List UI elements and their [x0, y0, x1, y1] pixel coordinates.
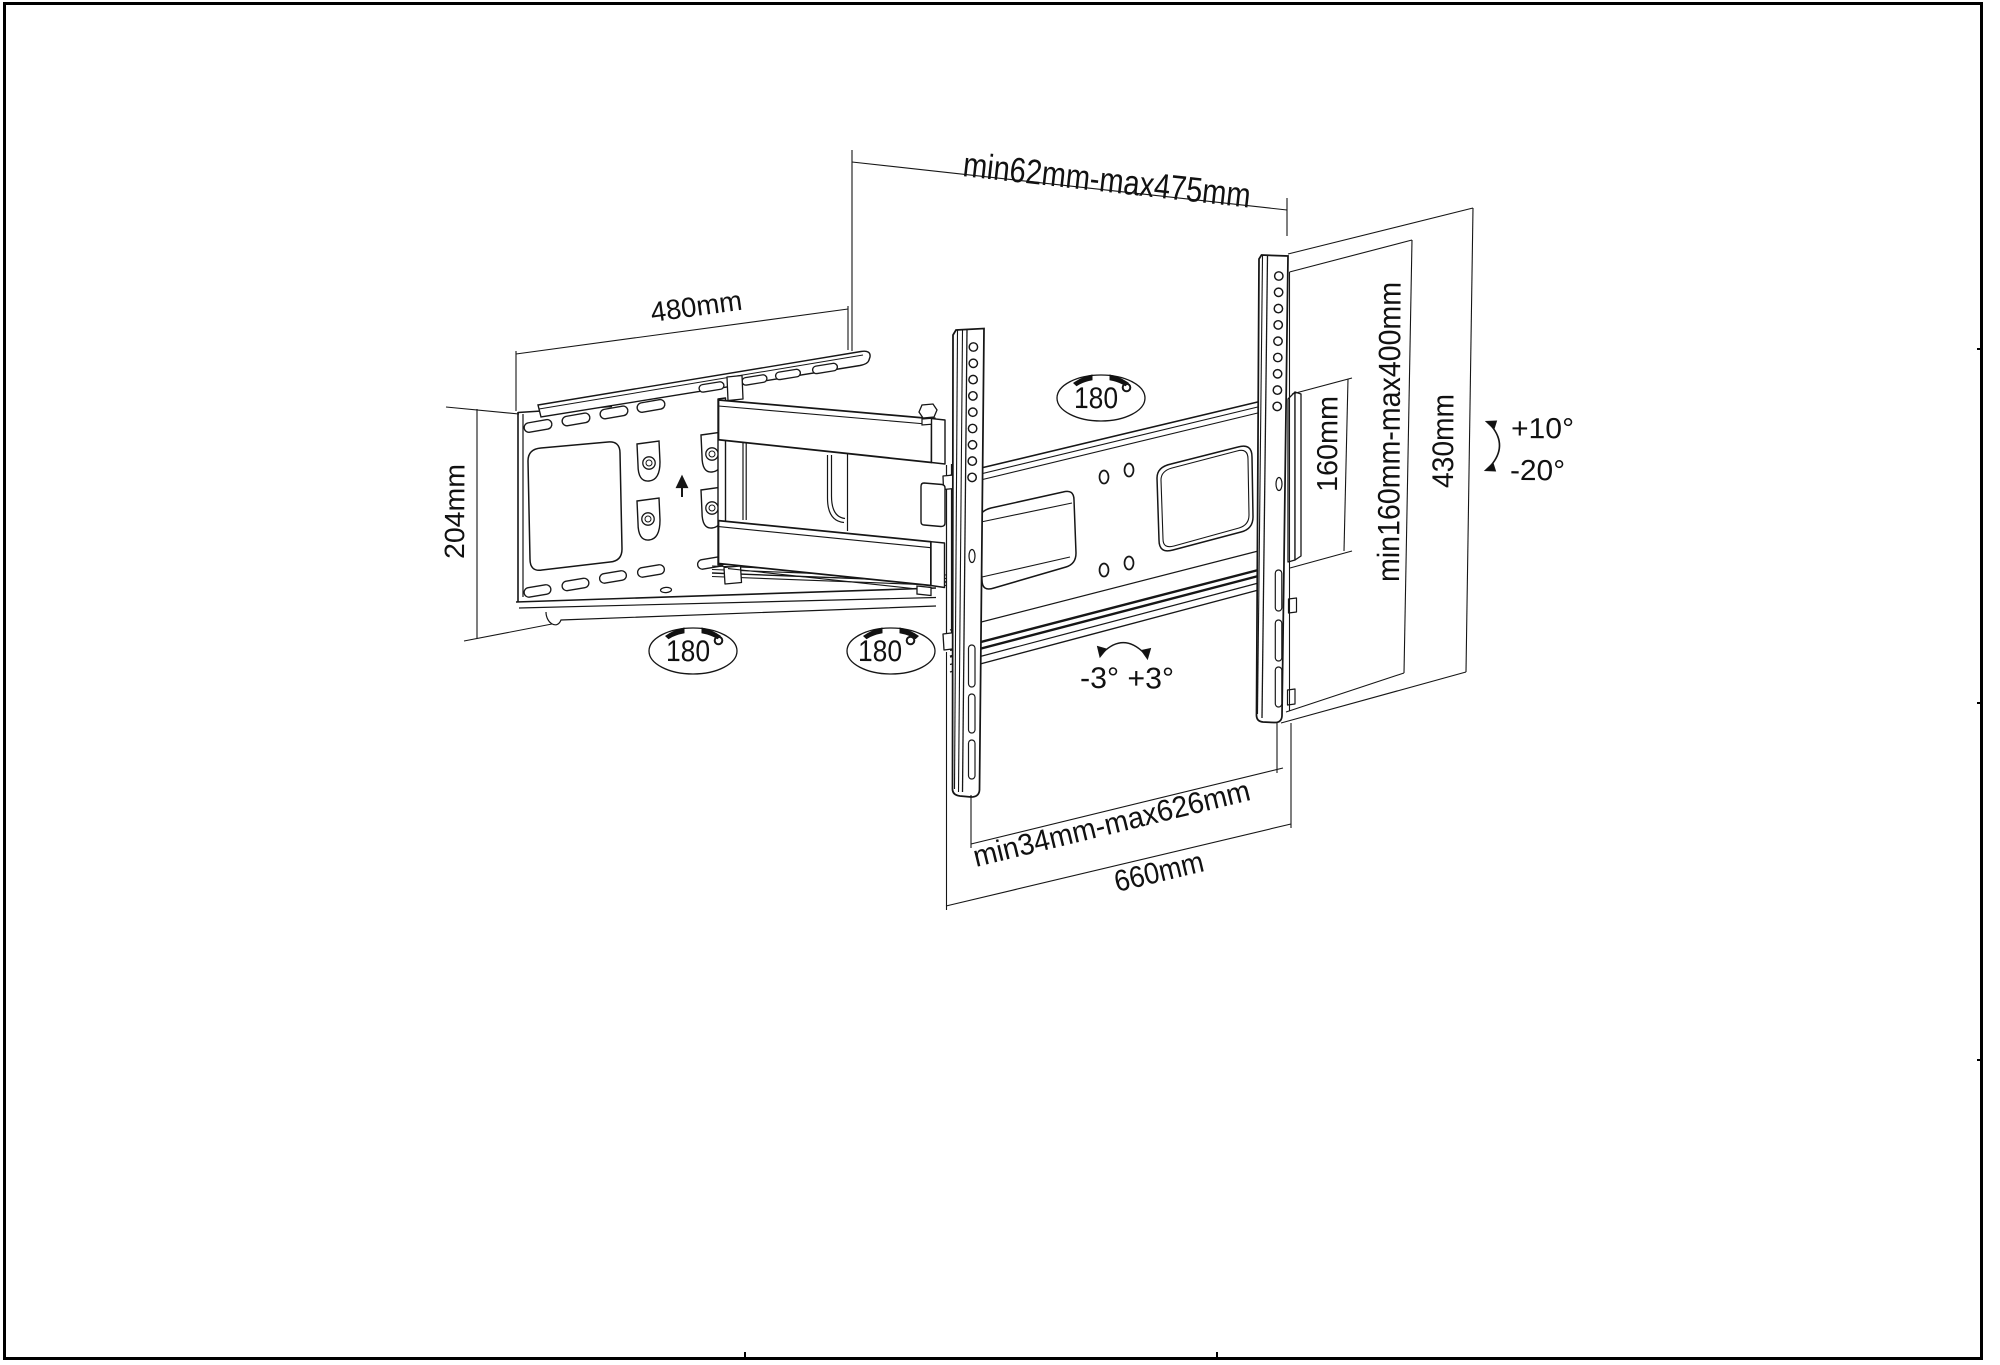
svg-text:min160mm-max400mm: min160mm-max400mm [1371, 282, 1408, 582]
svg-text:430mm: 430mm [1427, 394, 1460, 488]
svg-text:204mm: 204mm [439, 464, 470, 559]
svg-text:180: 180 [858, 635, 902, 668]
svg-text:180: 180 [666, 635, 710, 668]
svg-text:180: 180 [1074, 382, 1118, 415]
svg-text:160mm: 160mm [1312, 396, 1345, 492]
svg-text:-3° +3°: -3° +3° [1080, 662, 1174, 695]
svg-text:+10°: +10° [1511, 413, 1574, 445]
svg-text:-20°: -20° [1510, 455, 1565, 487]
